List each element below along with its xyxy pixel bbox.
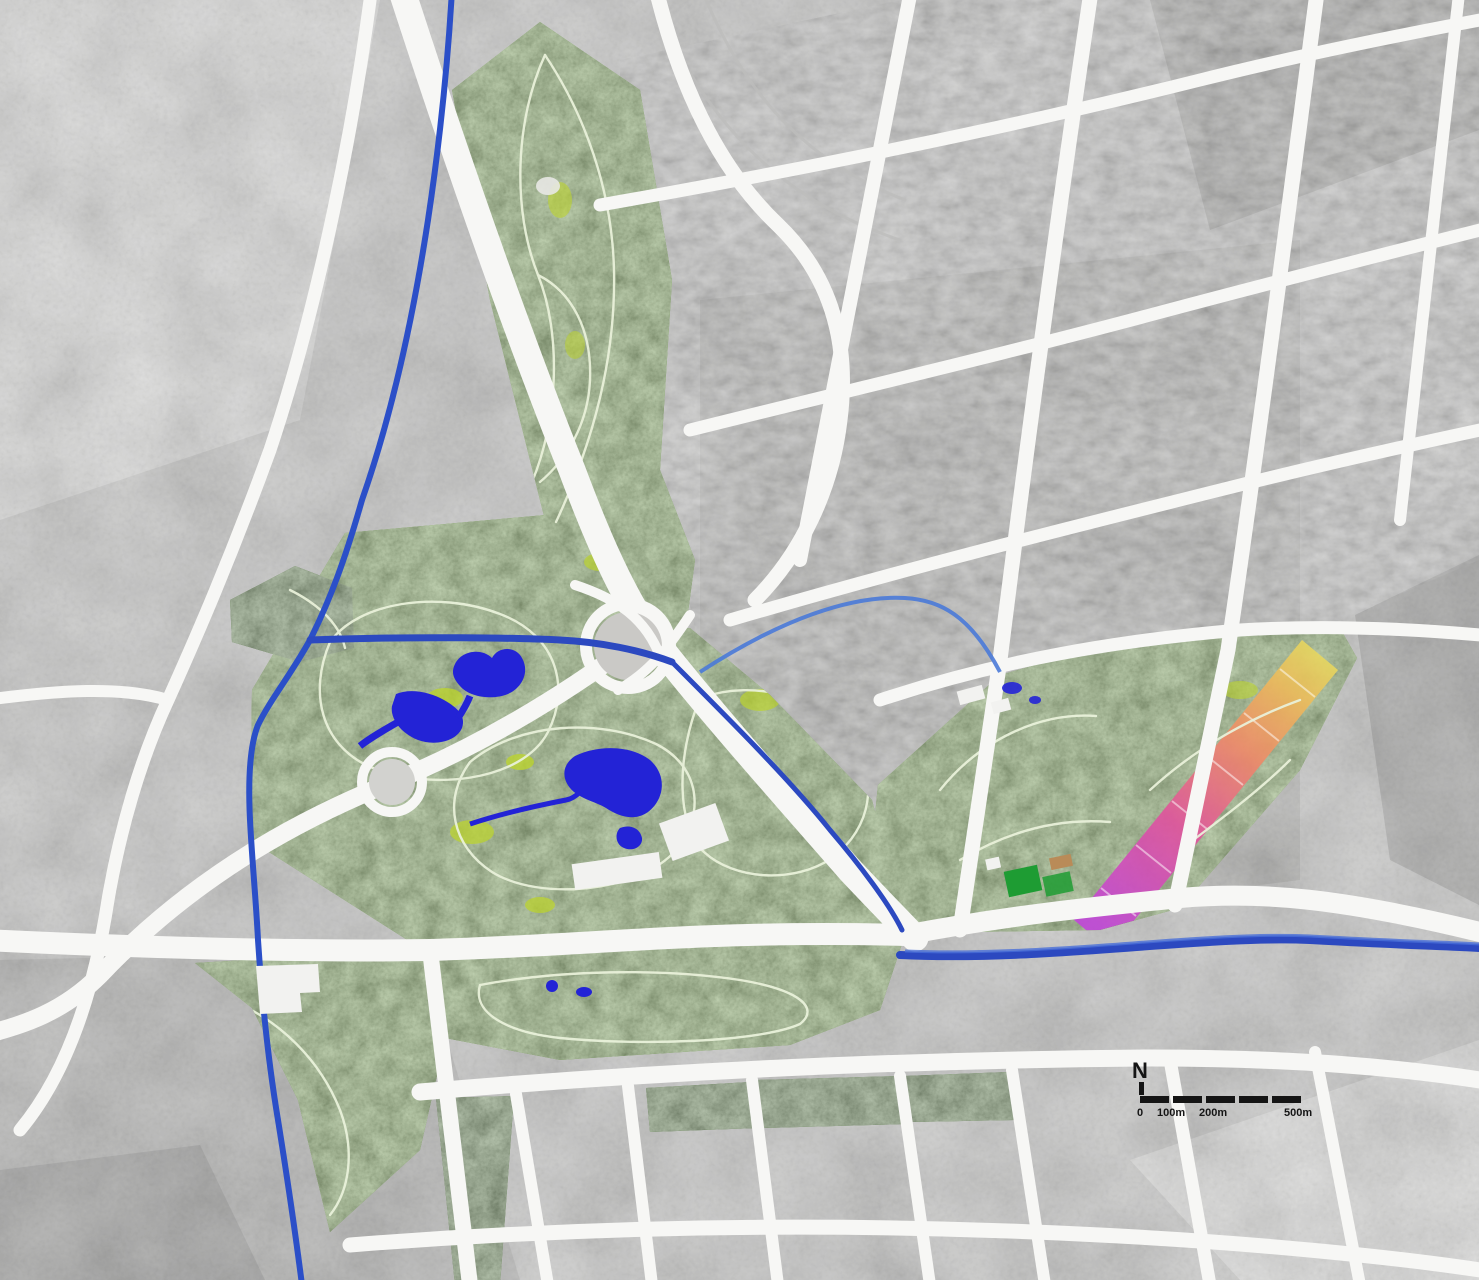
east-pond-2 <box>1029 696 1041 704</box>
north-clearing <box>536 177 560 195</box>
scale-tick-100: 100m <box>1157 1107 1185 1119</box>
scale-tick-0: 0 <box>1137 1107 1143 1119</box>
roundabout-center <box>369 759 415 805</box>
east-pond-1 <box>1002 682 1022 694</box>
scale-segment <box>1173 1096 1202 1103</box>
scale-segment <box>1239 1096 1268 1103</box>
south-pond-2 <box>576 987 592 997</box>
scale-bar <box>1140 1096 1301 1103</box>
scale-segment <box>1272 1096 1301 1103</box>
north-arrow-shaft <box>1139 1082 1144 1095</box>
meadow-patch <box>525 897 555 913</box>
meadow-patch <box>506 754 534 770</box>
north-arrow-label: N <box>1132 1058 1148 1083</box>
scale-segment <box>1206 1096 1235 1103</box>
scale-tick-200: 200m <box>1199 1107 1227 1119</box>
meadow-patch <box>565 331 585 359</box>
scale-tick-500: 500m <box>1284 1107 1312 1119</box>
roundabout-plaza <box>362 752 422 812</box>
map-canvas: N 0 100m 200m 500m <box>0 0 1479 1280</box>
masterplan-map: N 0 100m 200m 500m <box>0 0 1479 1280</box>
scale-segment <box>1140 1096 1169 1103</box>
south-pond-1 <box>546 980 558 992</box>
